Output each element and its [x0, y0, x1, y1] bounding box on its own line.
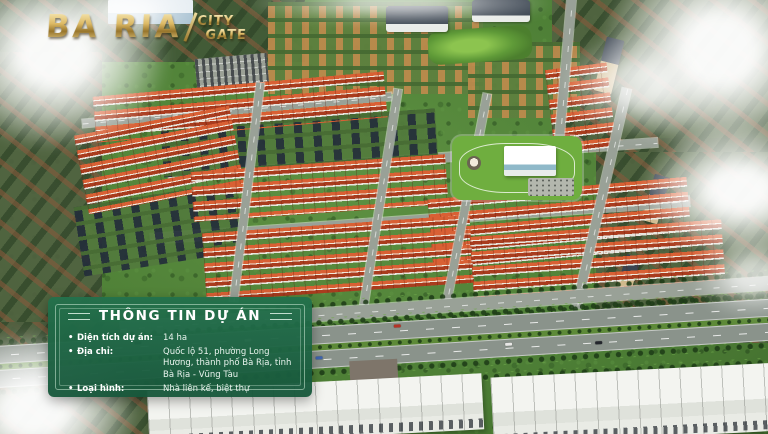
- info-value: Nhà liên kế, biệt thự: [163, 384, 296, 395]
- panel-title-row: THÔNG TIN DỰ ÁN: [48, 308, 312, 324]
- project-info-panel: THÔNG TIN DỰ ÁN • Diện tích dự án: 14 ha…: [48, 297, 312, 397]
- logo-secondary-text: CITY GATE: [196, 15, 248, 42]
- car: [316, 356, 323, 359]
- info-value: 14 ha: [163, 333, 296, 344]
- gazebo-icon: [467, 156, 481, 170]
- car: [394, 324, 401, 327]
- central-park: [452, 136, 582, 200]
- park-plaza: [528, 178, 574, 196]
- bullet-icon: •: [68, 347, 77, 381]
- info-label: Địa chỉ:: [77, 347, 163, 381]
- title-decor-line-left: [68, 313, 90, 320]
- community-center-building: [504, 146, 556, 176]
- aerial-masterplan-render: BA RIA CITY GATE THÔNG TIN DỰ ÁN • Diện …: [0, 0, 768, 434]
- info-value: Quốc lộ 51, phường Long Hương, thành phố…: [163, 347, 296, 381]
- panel-title: THÔNG TIN DỰ ÁN: [99, 308, 261, 324]
- title-decor-line-right: [270, 313, 292, 320]
- logo-gate-text: GATE: [205, 29, 247, 42]
- car: [505, 343, 512, 346]
- logo-city-text: CITY: [197, 15, 248, 28]
- panel-rows: • Diện tích dự án: 14 ha • Địa chỉ: Quốc…: [68, 333, 296, 395]
- info-label: Loại hình:: [77, 384, 163, 395]
- bullet-icon: •: [68, 384, 77, 395]
- logo-primary-text: BA RIA: [45, 12, 183, 43]
- car: [595, 341, 602, 344]
- info-row-area: • Diện tích dự án: 14 ha: [68, 333, 296, 344]
- info-row-type: • Loại hình: Nhà liên kế, biệt thự: [68, 384, 296, 395]
- info-row-address: • Địa chỉ: Quốc lộ 51, phường Long Hương…: [68, 347, 296, 381]
- project-logo: BA RIA CITY GATE: [45, 12, 248, 43]
- info-label: Diện tích dự án:: [77, 333, 163, 344]
- cloud-right-1: [560, 30, 720, 140]
- bullet-icon: •: [68, 333, 77, 344]
